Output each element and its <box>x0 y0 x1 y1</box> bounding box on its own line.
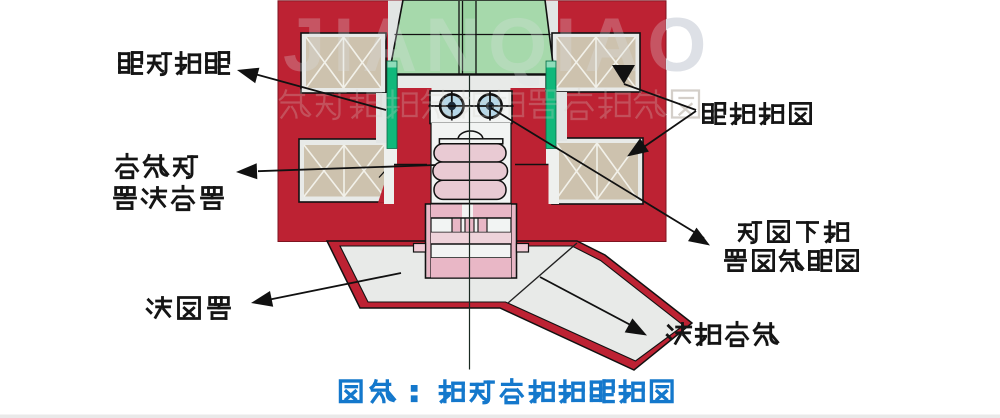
svg-text:JIANQIAO: JIANQIAO <box>283 3 714 88</box>
